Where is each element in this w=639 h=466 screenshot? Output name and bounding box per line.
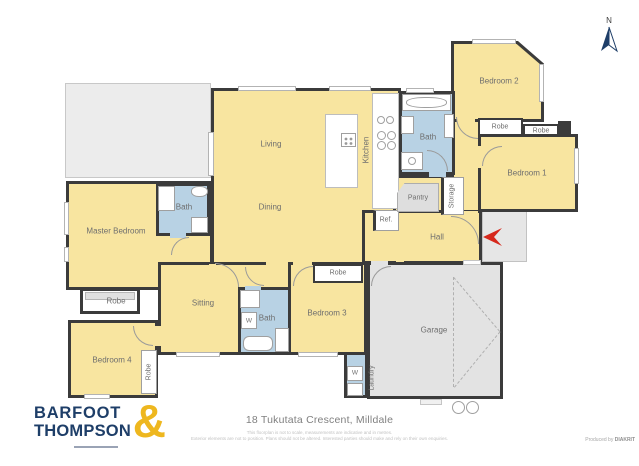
window-bedroom1-right [574,148,579,184]
window-living-2 [329,86,371,91]
entry-step [463,260,481,265]
logo-tagline [74,446,118,448]
kitchen-counter [372,93,399,209]
produced-by-prefix: Produced by [585,437,613,443]
entry-arrow-icon [481,227,503,247]
label-bath-main: Bath [420,133,436,142]
label-garage: Garage [421,326,448,335]
window-bedroom3-bottom [298,352,338,357]
window-living-1 [238,86,296,91]
label-laundry: Laundry [369,365,376,390]
sink-bowl-2 [386,116,394,124]
producer-name: DIAKRIT [615,437,635,443]
bath2-toilet [240,290,260,308]
label-hall: Hall [430,233,444,242]
kitchen-island [325,114,358,188]
opening-dining-sitting [266,260,288,267]
label-bedroom2: Bedroom 2 [479,77,518,86]
label-ref: Ref. [380,217,393,224]
label-washer-bath2: W [246,318,252,325]
label-kitchen: Kitchen [362,137,371,164]
north-arrow-icon [596,25,622,53]
label-bedroom3: Bedroom 3 [307,309,346,318]
ensuite-shower [158,186,175,211]
disclaimer-line1: This floorplan is not to scale, measurem… [0,430,639,435]
window-bedroom2-right [539,64,544,102]
label-bath2: Bath [259,314,275,323]
vanity-main-right [444,114,454,138]
tank-2 [466,401,479,414]
disclaimer-line2: Exterior elements are not to position. P… [0,436,639,441]
label-sitting: Sitting [192,299,214,308]
label-robe-bedroom3: Robe [330,270,347,277]
bath2-tub [243,336,273,351]
floorplan-page: N Living Dining Kitchen Bath Pantry Stor… [0,0,639,466]
produced-by: Produced by DIAKRIT [585,437,635,443]
window-sitting-bottom [176,352,220,357]
window-master-2 [64,247,69,262]
compass-north-label: N [596,16,622,25]
property-address: 18 Tukutata Crescent, Milldale [0,414,639,426]
burner-1 [377,131,386,140]
garage-step [420,399,442,405]
label-bedroom4: Bedroom 4 [92,356,131,365]
label-robe-master: Robe [106,297,125,306]
toilet-main [401,116,414,134]
burner-2 [387,131,396,140]
label-pantry: Pantry [408,195,428,202]
bathtub-main-basin [406,97,447,108]
window-bedroom2-top [472,39,516,44]
ensuite-sink [191,186,208,197]
patio-area [65,83,211,178]
laundry-appliance [347,383,363,396]
window-bedroom4-bottom [84,394,110,399]
label-robe-bedroom4: Robe [146,364,153,381]
opening-bedroom4-door [154,326,162,346]
label-robe-1: Robe [492,124,509,131]
label-washer-laundry: W [352,370,358,377]
vanity-main-sink [408,157,416,165]
window-bath-main [406,88,434,93]
burner-3 [377,141,386,150]
barfoot-thompson-logo: BARFOOT THOMPSON & [34,404,154,454]
garage-dash-vertical [453,277,454,387]
bath2-shower [275,328,289,352]
cooktop-icon [341,133,356,147]
label-living: Living [261,140,282,149]
burner-4 [387,141,396,150]
label-robe-2: Robe [533,128,550,135]
sink-bowl-1 [377,116,385,124]
window-master-1 [64,202,69,235]
label-storage: Storage [449,184,456,209]
label-dining: Dining [259,203,282,212]
tank-1 [452,401,465,414]
label-bedroom1: Bedroom 1 [507,169,546,178]
label-bath-ensuite: Bath [176,203,192,212]
ensuite-toilet [191,217,208,233]
patio-slider-door [208,132,214,176]
label-master-bedroom: Master Bedroom [86,227,145,236]
compass: N [596,16,622,58]
